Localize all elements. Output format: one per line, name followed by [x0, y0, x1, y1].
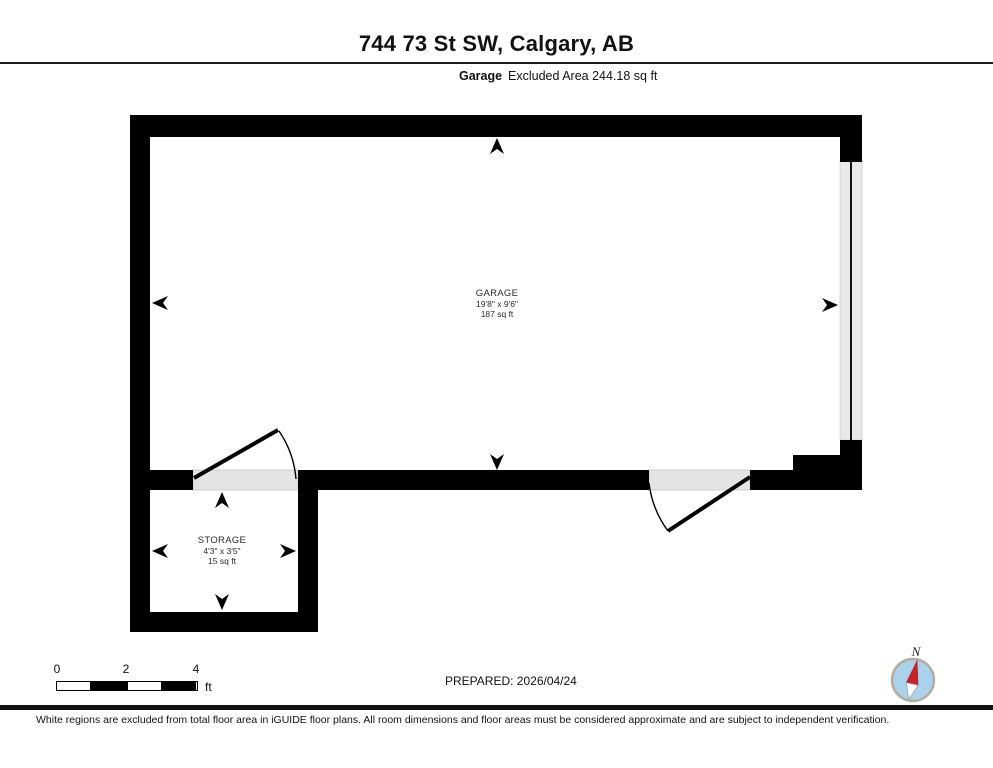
room-area: 15 sq ft: [162, 556, 282, 566]
disclaimer-text: White regions are excluded from total fl…: [36, 714, 966, 726]
room-area: 187 sq ft: [437, 309, 557, 319]
room-dimensions: 4'3" x 3'5": [162, 546, 282, 556]
room-label-storage: STORAGE 4'3" x 3'5" 15 sq ft: [162, 536, 282, 566]
scale-unit-label: ft: [205, 680, 212, 694]
wall-right-top-block: [840, 115, 862, 162]
garage-arrow-left-icon: [152, 296, 168, 310]
footer-divider: [0, 705, 993, 710]
wall-storage-right: [298, 470, 318, 632]
room-name: GARAGE: [437, 289, 557, 299]
garage-arrow-up-icon: [490, 138, 504, 154]
storage-door-opening: [193, 470, 298, 490]
room-dimensions: 19'8" x 9'6": [437, 299, 557, 309]
floorplan-drawing: [0, 0, 993, 768]
wall-bottom-seg-left: [150, 470, 193, 490]
wall-top: [130, 115, 862, 137]
wall-storage-bottom: [130, 612, 318, 632]
wall-bottom-seg-right: [750, 470, 795, 490]
scale-tick-0: 0: [51, 662, 63, 676]
door-openings: [193, 160, 862, 490]
garage-arrow-down-icon: [490, 454, 504, 470]
room-name: STORAGE: [162, 536, 282, 546]
wall-bottom-seg-mid: [298, 470, 649, 490]
compass-icon: N: [886, 641, 942, 707]
storage-arrow-down-icon: [215, 594, 229, 610]
scale-bar: [56, 681, 198, 691]
room-label-garage: GARAGE 19'8" x 9'6" 187 sq ft: [437, 289, 557, 319]
scale-tick-4: 4: [190, 662, 202, 676]
scale-tick-2: 2: [120, 662, 132, 676]
scale-bar-segment: [161, 682, 196, 690]
storage-arrow-up-icon: [215, 492, 229, 508]
floorplan-page: 744 73 St SW, Calgary, AB Garage Exclude…: [0, 0, 993, 768]
compass-north-label: N: [911, 644, 922, 659]
prepared-date: PREPARED: 2026/04/24: [445, 674, 577, 688]
storage-arrow-right-icon: [280, 544, 296, 558]
garage-arrow-right-icon: [822, 298, 838, 312]
wall-bottom-right-step: [793, 455, 862, 490]
wall-left: [130, 115, 150, 632]
scale-bar-segment: [90, 682, 128, 690]
